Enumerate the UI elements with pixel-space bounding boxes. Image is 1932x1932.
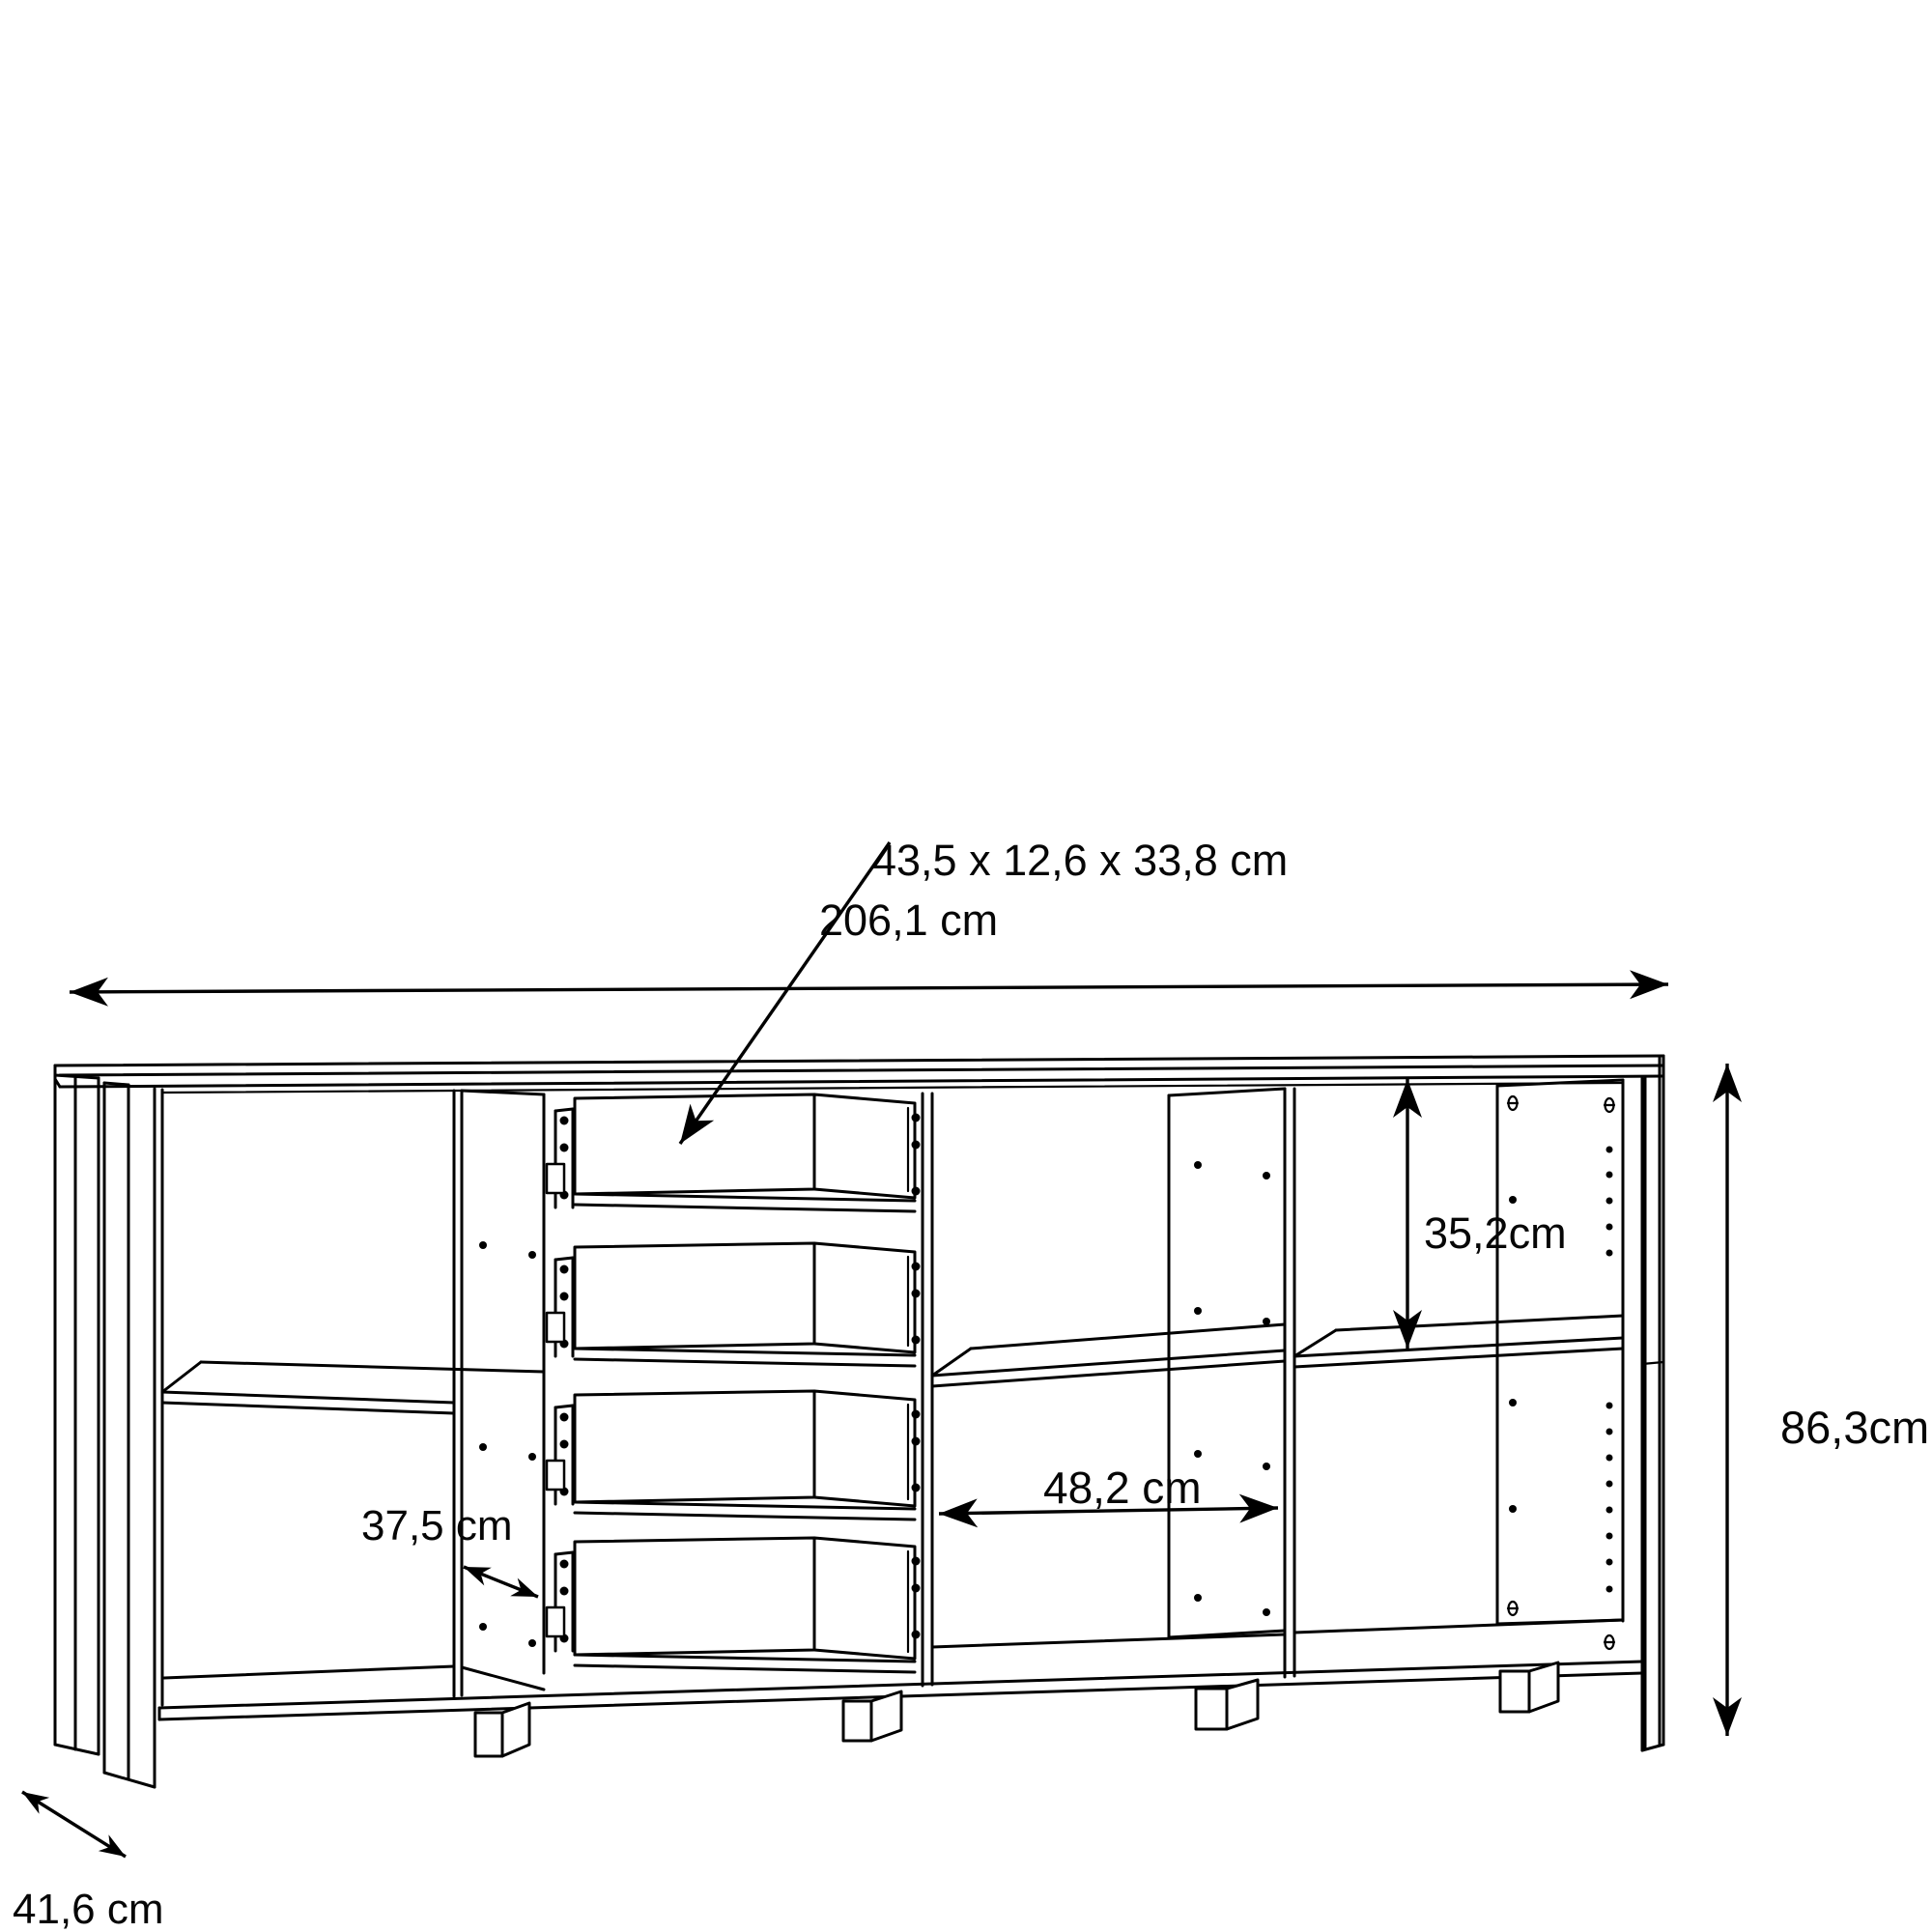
left-door-open [55,1075,99,1754]
drawer-3 [547,1391,921,1520]
total-height-dimension: 86,3cm [1727,1064,1929,1736]
total-width-dimension: 206,1 cm [70,895,1668,992]
shelf-right [1294,1316,1623,1367]
total-height-label: 86,3cm [1780,1402,1929,1453]
shelf-middle [932,1324,1285,1386]
right-side-panel [1623,1058,1663,1750]
sideboard-technical-drawing: 206,1 cm 43,5 x 12,6 x 33,8 cm 48,2 cm 3… [0,0,1932,1932]
depth-label: 41,6 cm [13,1886,164,1932]
right-panel-inner-face [1497,1080,1623,1649]
left-compartment-width-dimension: 37,5 cm [361,1502,538,1597]
left-compartment-width-label: 37,5 cm [361,1502,513,1549]
legs [475,1662,1558,1756]
drawer-2 [547,1243,921,1366]
right-compartment-height-dimension: 35,2cm [1407,1079,1567,1349]
middle-compartment-width-dimension: 48,2 cm [939,1463,1278,1514]
partition-2 [923,1094,932,1686]
depth-dimension: 41,6 cm [13,1792,164,1932]
drawer-1 [547,1094,921,1211]
middle-compartment-width-label: 48,2 cm [1043,1463,1202,1513]
top-panel [55,1056,1663,1093]
partition-1 [454,1091,544,1696]
shelf-left [162,1362,544,1413]
left-side-panel [104,1083,162,1787]
right-compartment-height-label: 35,2cm [1424,1208,1567,1258]
drawer-dimensions-label: 43,5 x 12,6 x 33,8 cm [872,836,1288,885]
drawer-4 [547,1538,921,1672]
partition-3 [1169,1089,1294,1677]
furniture-dimension-diagram: 206,1 cm 43,5 x 12,6 x 33,8 cm 48,2 cm 3… [0,0,1932,1932]
